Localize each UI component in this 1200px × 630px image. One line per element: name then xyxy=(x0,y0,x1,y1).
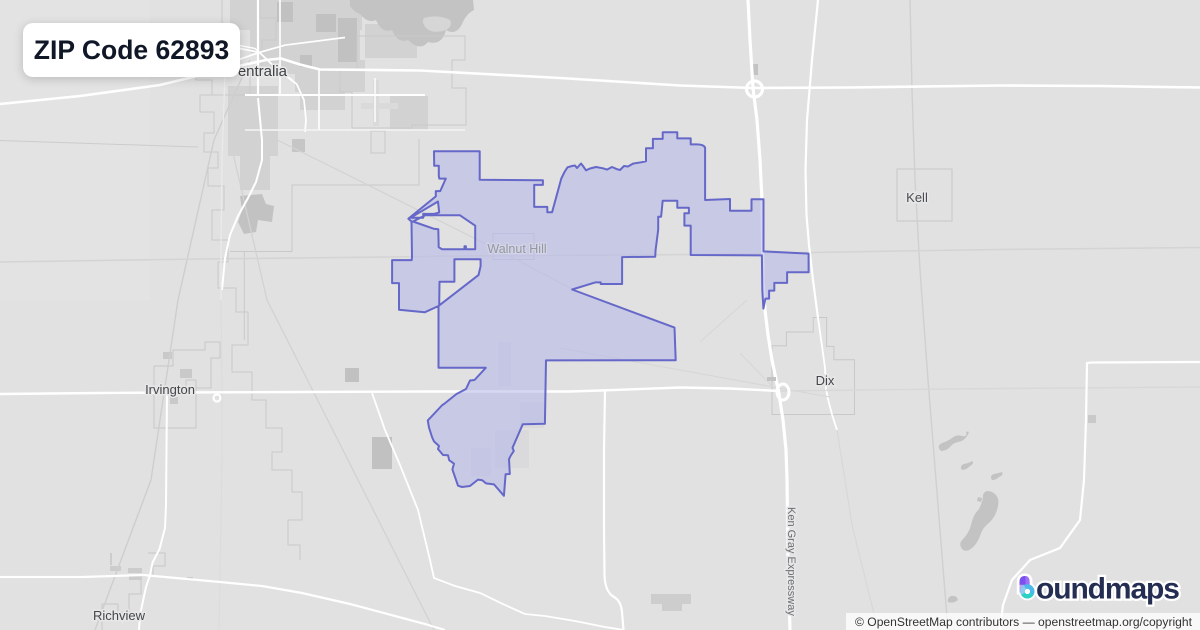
svg-text:Kell: Kell xyxy=(906,190,928,205)
svg-text:Richview: Richview xyxy=(93,608,146,623)
svg-text:Dix: Dix xyxy=(816,373,835,388)
svg-text:oundmaps: oundmaps xyxy=(1036,573,1179,606)
svg-text:Ken Gray Expressway: Ken Gray Expressway xyxy=(785,507,797,616)
svg-text:Walnut Hill: Walnut Hill xyxy=(487,242,546,256)
svg-text:Irvington: Irvington xyxy=(145,382,195,397)
